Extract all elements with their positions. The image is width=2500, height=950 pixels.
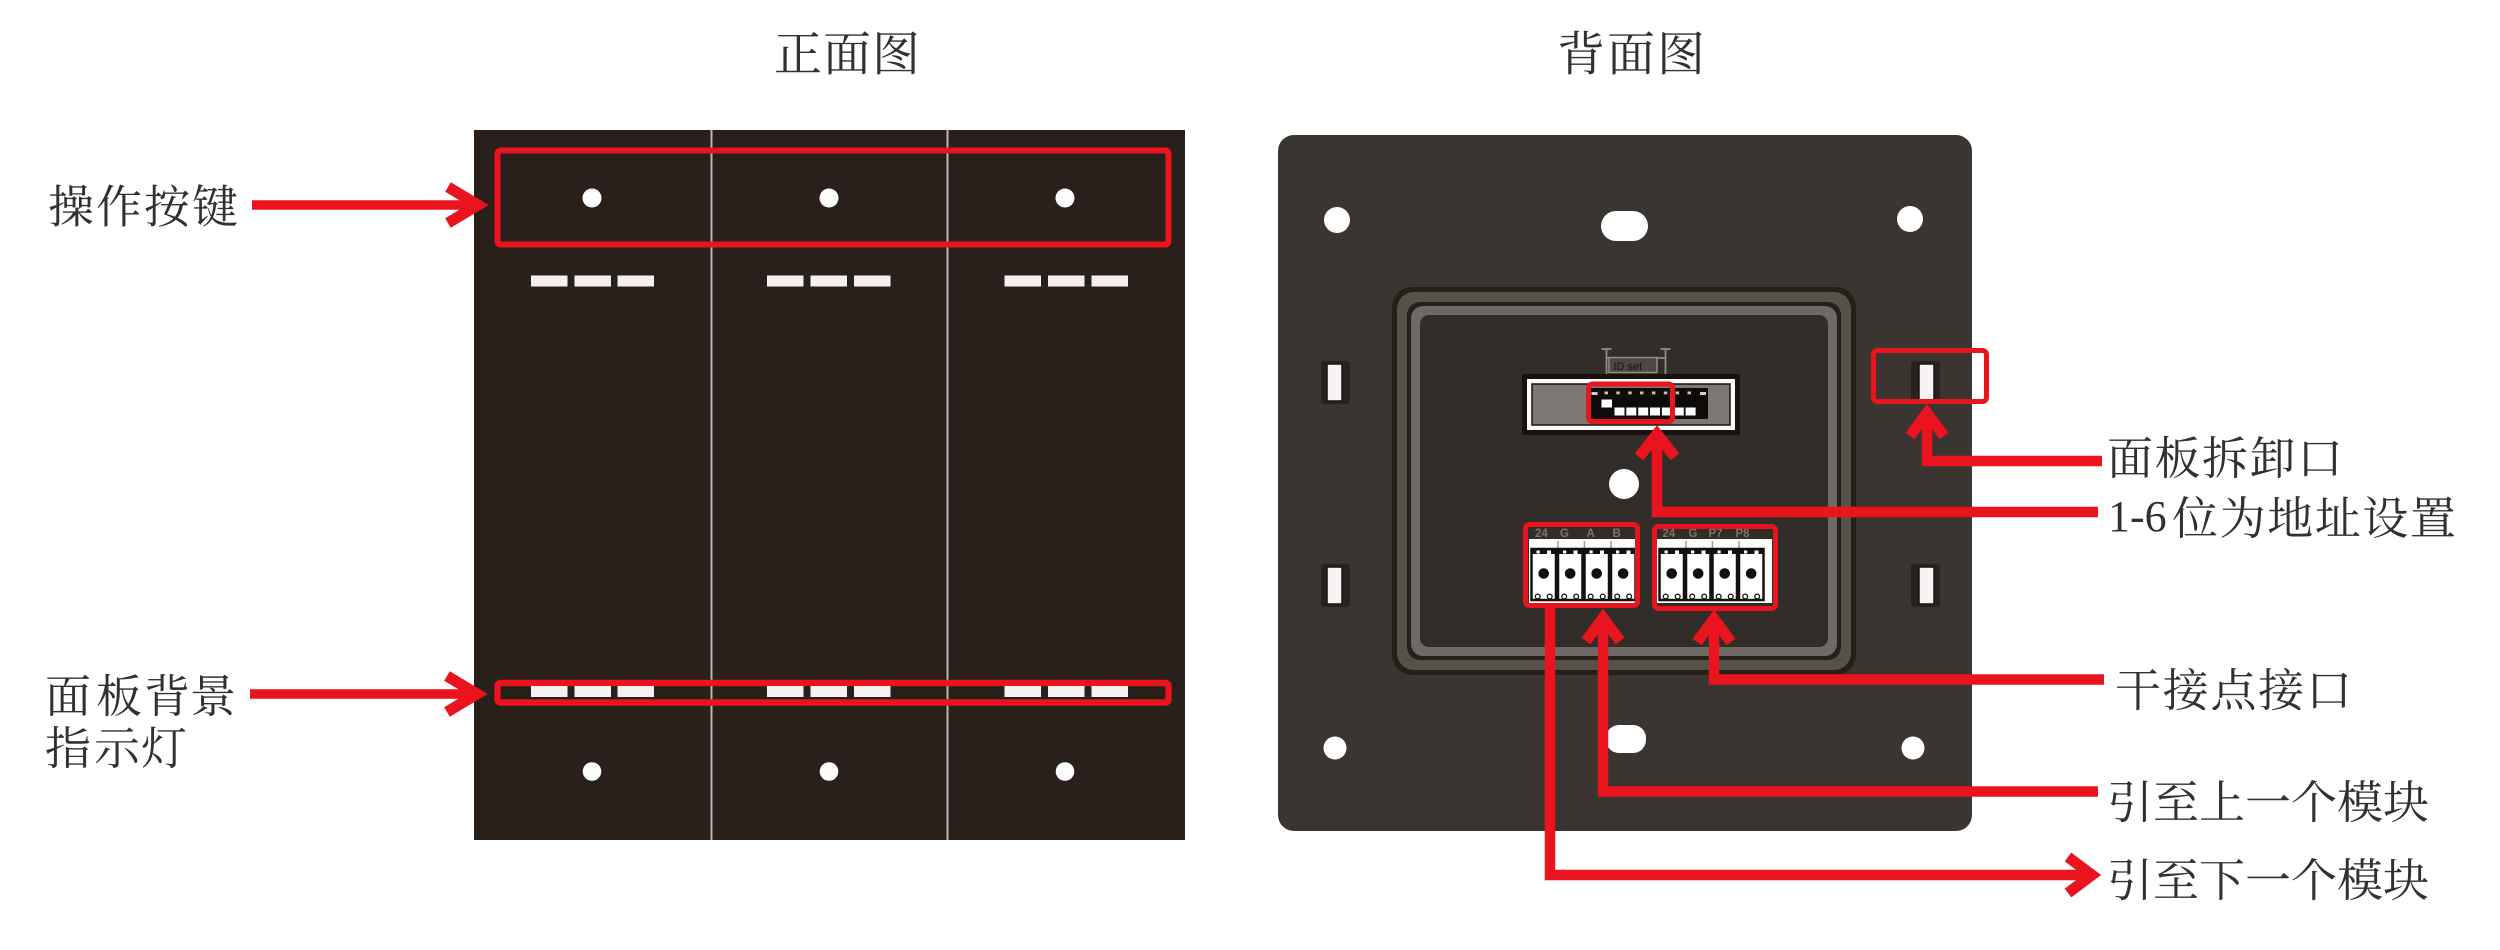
svg-text:P7: P7 xyxy=(1709,528,1723,540)
svg-text:A: A xyxy=(1587,528,1595,540)
svg-text:P8: P8 xyxy=(1736,528,1751,540)
svg-text:24: 24 xyxy=(1535,528,1548,540)
svg-text:B: B xyxy=(1613,528,1621,540)
svg-text:ID set: ID set xyxy=(1614,361,1643,373)
svg-text:24: 24 xyxy=(1663,528,1676,540)
svg-text:G: G xyxy=(1689,528,1698,540)
svg-text:G: G xyxy=(1560,528,1569,540)
svg-text:1-6: 1-6 xyxy=(2108,492,2167,541)
